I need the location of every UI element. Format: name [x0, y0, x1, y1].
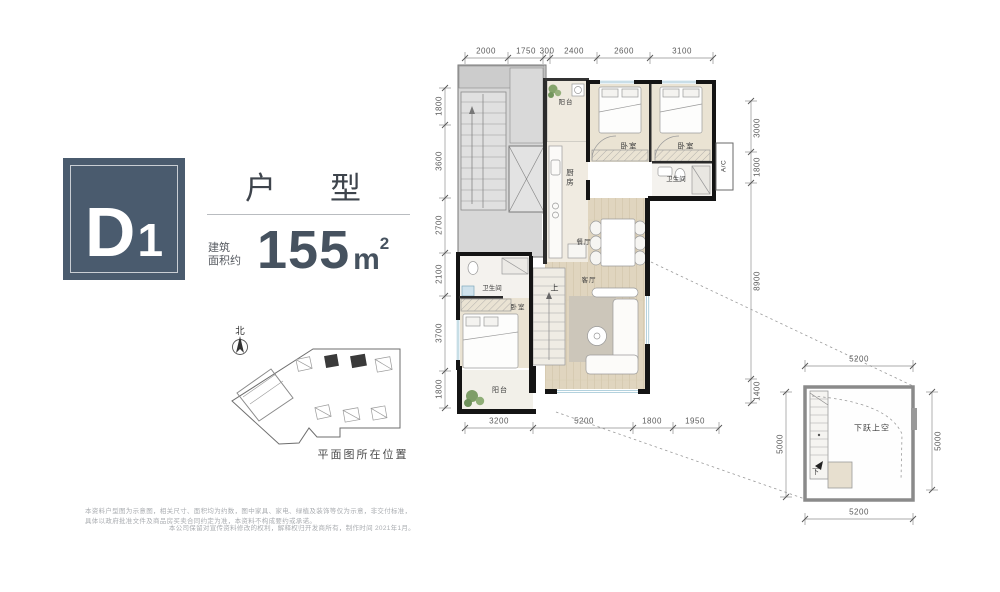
- dim-left-2: 3600: [435, 151, 444, 171]
- dim-bottom-2: 5200: [574, 417, 594, 426]
- room-label-bath-left: 卫生间: [482, 282, 502, 292]
- room-label-balcony-top: 阳台: [559, 96, 574, 106]
- room-label-dining: 餐厅: [577, 236, 592, 246]
- area-prefix: 建筑 面积约: [208, 242, 241, 268]
- unit-code-badge: D1: [63, 158, 185, 280]
- room-label-balcony-bottom: 阳台: [492, 385, 508, 395]
- title-divider: [207, 214, 410, 215]
- area-block: 建筑 面积约 155 m 2: [208, 229, 389, 272]
- dim-top-1: 2000: [476, 47, 496, 56]
- area-unit: m: [353, 248, 380, 272]
- loft-dim-top: 5200: [849, 355, 869, 364]
- dim-top-2: 1750: [516, 47, 536, 56]
- room-label-bedroom-b: 卧室: [678, 141, 695, 152]
- dim-top-5: 2600: [614, 47, 634, 56]
- dim-left-4: 2100: [435, 264, 444, 284]
- loft-dim-bottom: 5200: [849, 508, 869, 517]
- dim-right-3: 8900: [753, 271, 762, 291]
- dim-bottom-4: 1950: [685, 417, 705, 426]
- dim-top-3: 300: [540, 47, 555, 56]
- floorplan-page: D1 户型 建筑 面积约 155 m 2 阳台 厨房 卧室 卧室 卫生间 A/C…: [0, 0, 1000, 592]
- dim-left-1: 1800: [435, 96, 444, 116]
- area-value: 155: [257, 229, 350, 272]
- dim-top-6: 3100: [672, 47, 692, 56]
- dim-bottom-1: 3200: [489, 417, 509, 426]
- dim-right-4: 1400: [753, 381, 762, 401]
- room-label-ac: A/C: [721, 160, 728, 172]
- page-title: 户型: [245, 163, 415, 208]
- stair-up-label: 上: [551, 283, 560, 294]
- area-prefix-line1: 建筑: [208, 242, 241, 255]
- loft-dim-left: 5000: [776, 434, 785, 454]
- disclaimer-line-2: 本公司保留对宣传资料修改的权利，解释权归开发商所有，制作时间 2021年1月。: [85, 522, 415, 532]
- loft-void-label: 下跃上空: [854, 423, 890, 434]
- north-label: 北: [235, 323, 245, 337]
- site-plan-caption: 平面图所在位置: [318, 446, 409, 462]
- dim-bottom-3: 1800: [642, 417, 662, 426]
- dim-left-5: 3700: [435, 323, 444, 343]
- dim-top-4: 2400: [564, 47, 584, 56]
- unit-code-sub: 1: [137, 222, 163, 260]
- dim-right-1: 3000: [753, 118, 762, 138]
- room-label-kitchen: 厨房: [565, 169, 576, 188]
- room-label-bedroom-a: 卧室: [621, 141, 638, 152]
- dim-left-6: 1800: [435, 379, 444, 399]
- room-label-bath-right: 卫生间: [666, 173, 686, 183]
- room-label-living: 客厅: [582, 274, 597, 284]
- dim-left-3: 2700: [435, 215, 444, 235]
- area-superscript: 2: [380, 235, 389, 252]
- loft-dim-right: 5000: [934, 431, 943, 451]
- site-plan: [232, 336, 400, 444]
- area-prefix-line2: 面积约: [208, 255, 241, 268]
- room-label-bedroom-c: 卧室: [511, 301, 526, 311]
- plan-graphics: [0, 0, 1000, 592]
- unit-code-main: D: [85, 204, 136, 260]
- dim-right-2: 1800: [753, 157, 762, 177]
- loft-plan: [780, 360, 938, 525]
- loft-stair-down-label: 下: [812, 467, 820, 477]
